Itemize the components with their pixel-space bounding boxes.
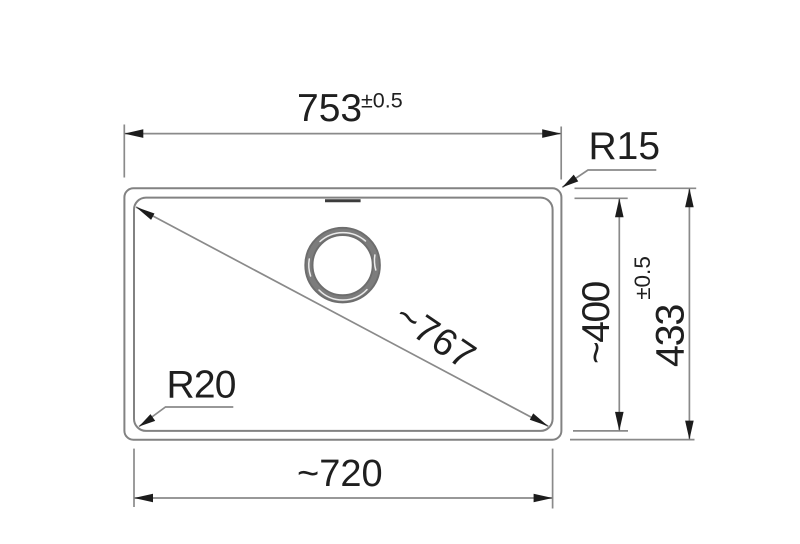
svg-text:±0.5: ±0.5 [630,256,655,300]
svg-text:433: 433 [649,305,693,367]
svg-text:~400: ~400 [575,281,618,364]
svg-text:R15: R15 [589,125,661,168]
svg-text:~720: ~720 [297,453,383,495]
svg-text:R20: R20 [167,364,236,407]
svg-text:±0.5: ±0.5 [361,89,403,113]
svg-text:753: 753 [297,87,362,130]
